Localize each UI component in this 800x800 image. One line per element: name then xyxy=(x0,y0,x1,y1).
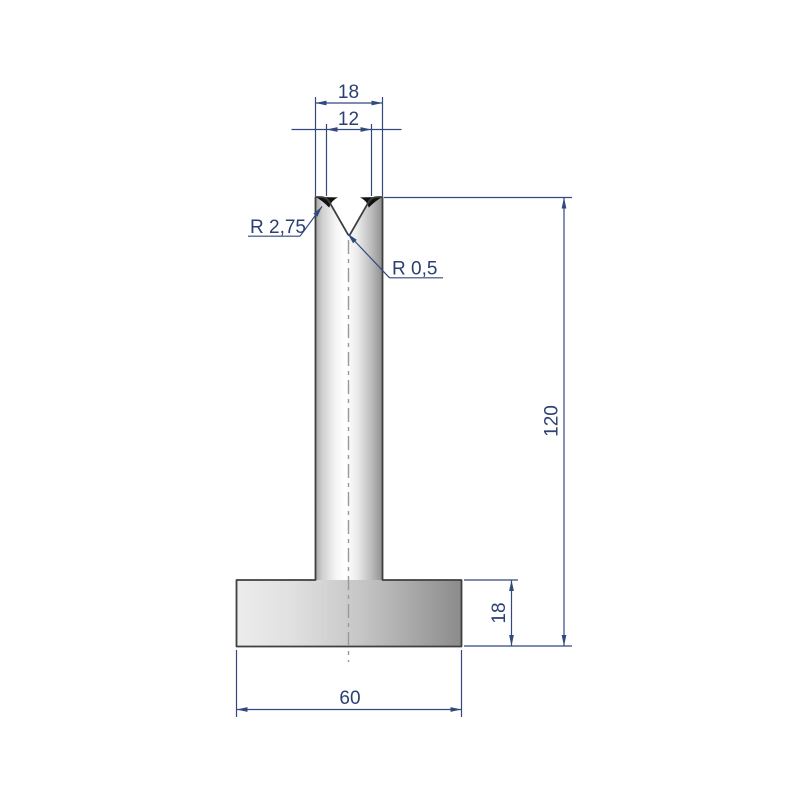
arrowhead-left xyxy=(237,707,248,712)
dim-base-height: 18 xyxy=(464,580,518,646)
arrowhead-top xyxy=(562,198,567,209)
dim-v-opening: 12 xyxy=(292,109,402,196)
arrowhead-top xyxy=(509,580,514,591)
arrowhead-bottom xyxy=(509,635,514,646)
label-text-shoulder-radius: R 2,75 xyxy=(250,217,306,238)
dim-top-width: 18 xyxy=(316,82,383,196)
dim-text-base-height: 18 xyxy=(489,602,510,623)
arrowhead-left xyxy=(327,127,338,132)
dim-text-base-width: 60 xyxy=(339,688,360,709)
arrowhead-left xyxy=(316,101,327,106)
dim-text-v-opening: 12 xyxy=(338,109,359,130)
arrowhead-right xyxy=(361,127,372,132)
label-shoulder-radius: R 2,75 xyxy=(248,207,322,239)
dim-text-top-width: 18 xyxy=(338,82,359,103)
arrowhead-bottom xyxy=(562,635,567,646)
t-die-dimension-drawing: 18 12 120 18 xyxy=(0,0,800,800)
arrowhead-right xyxy=(451,707,462,712)
label-text-vertex-radius: R 0,5 xyxy=(392,259,437,280)
arrowhead-right xyxy=(372,101,383,106)
technical-drawing-page: 18 12 120 18 xyxy=(0,0,800,800)
dim-text-total-height: 120 xyxy=(542,405,563,437)
